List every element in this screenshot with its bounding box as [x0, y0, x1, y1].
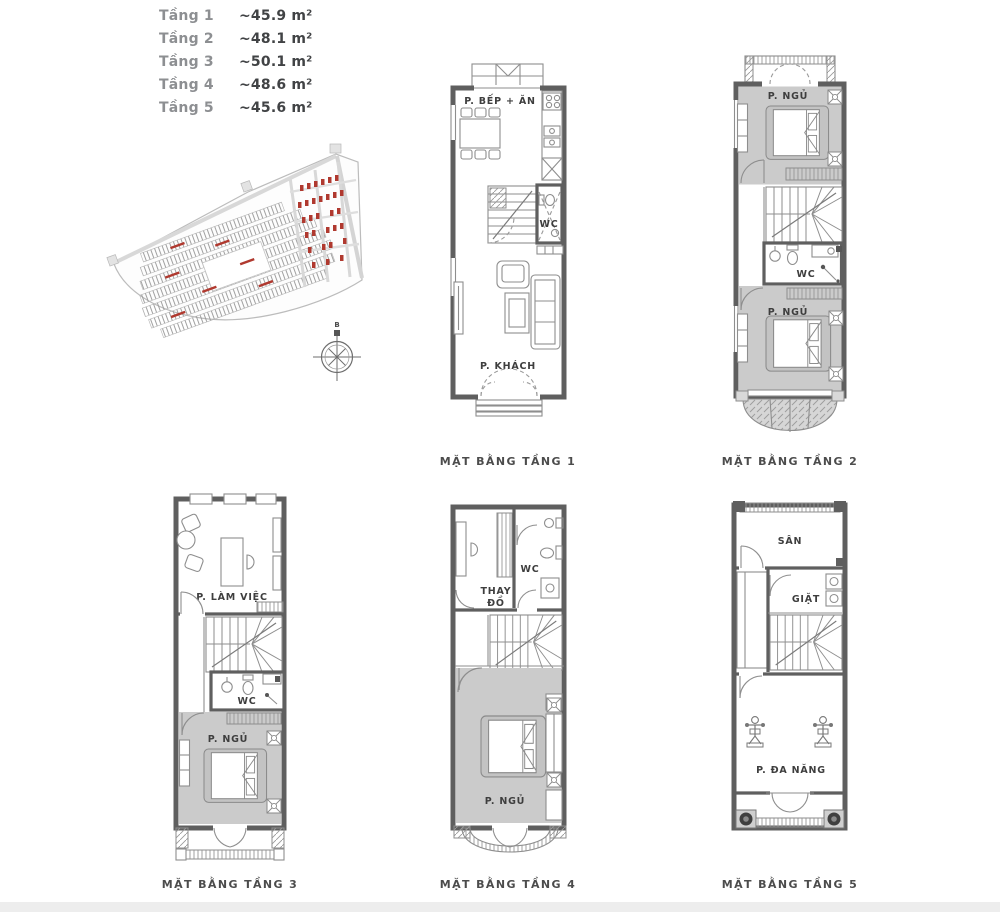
room-label-laundry: GIẶT	[792, 594, 820, 605]
room-label-living: P. KHÁCH	[480, 360, 536, 372]
compass-north-label: B	[334, 321, 339, 329]
room-label-bedroom: P. NGỦ	[208, 732, 248, 745]
room-label-wc: WC	[237, 696, 256, 707]
compass-icon: B	[313, 321, 361, 381]
site-plan-map: B	[107, 144, 362, 381]
floor-plan-4: THAY ĐỒ WC	[453, 507, 566, 852]
floor-plan-2-caption: MẶT BẰNG TẦNG 2	[680, 455, 900, 468]
bottom-edge-strip	[0, 902, 1000, 912]
floor-plan-4-caption: MẶT BẰNG TẦNG 4	[398, 878, 618, 891]
floor-plan-5-caption: MẶT BẰNG TẦNG 5	[680, 878, 900, 891]
floor-plan-5: SÂN GIẶT P. ĐA NĂNG	[733, 501, 846, 828]
room-label-wc: WC	[520, 564, 539, 575]
room-label-wc: WC	[539, 219, 558, 230]
floor-plan-3: P. LÀM VIỆC WC P. NGỦ	[176, 494, 284, 860]
floor-plan-sheet: Tầng 1 ~45.9 m² Tầng 2 ~48.1 m² Tầng 3 ~…	[0, 0, 1000, 912]
room-label-dressing-1: THAY	[481, 586, 512, 597]
floor-plan-1-caption: MẶT BẰNG TẦNG 1	[398, 455, 618, 468]
room-label-dressing-2: ĐỒ	[487, 596, 505, 609]
room-label-kitchen-dining: P. BẾP + ĂN	[464, 94, 536, 107]
floor-plan-1: P. BẾP + ĂN WC P. KHÁCH	[450, 64, 565, 416]
floor-plan-2: P. NGỦ WC P.	[733, 56, 844, 432]
room-label-workroom: P. LÀM VIỆC	[196, 591, 267, 603]
room-label-bedroom: P. NGỦ	[485, 794, 525, 807]
room-label-terrace: SÂN	[778, 535, 803, 547]
floor-plan-3-caption: MẶT BẰNG TẦNG 3	[120, 878, 340, 891]
room-label-wc: WC	[796, 269, 815, 280]
room-label-bedroom-front: P. NGỦ	[768, 89, 808, 102]
room-label-multipurpose: P. ĐA NĂNG	[756, 764, 826, 776]
